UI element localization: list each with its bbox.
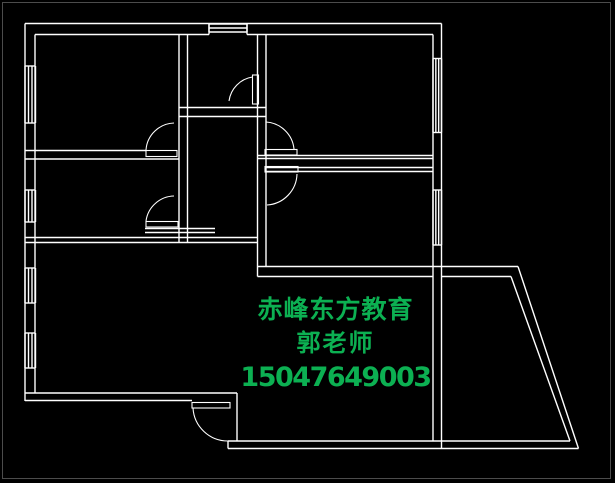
floorplan-canvas (0, 0, 615, 483)
watermark-phone: 15047649003 (238, 364, 433, 391)
watermark: 赤峰东方教育 郭老师 15047649003 (238, 297, 433, 391)
watermark-teacher: 郭老师 (238, 331, 433, 355)
watermark-company: 赤峰东方教育 (238, 297, 433, 322)
cad-screenshot: 赤峰东方教育 郭老师 15047649003 (0, 0, 615, 483)
